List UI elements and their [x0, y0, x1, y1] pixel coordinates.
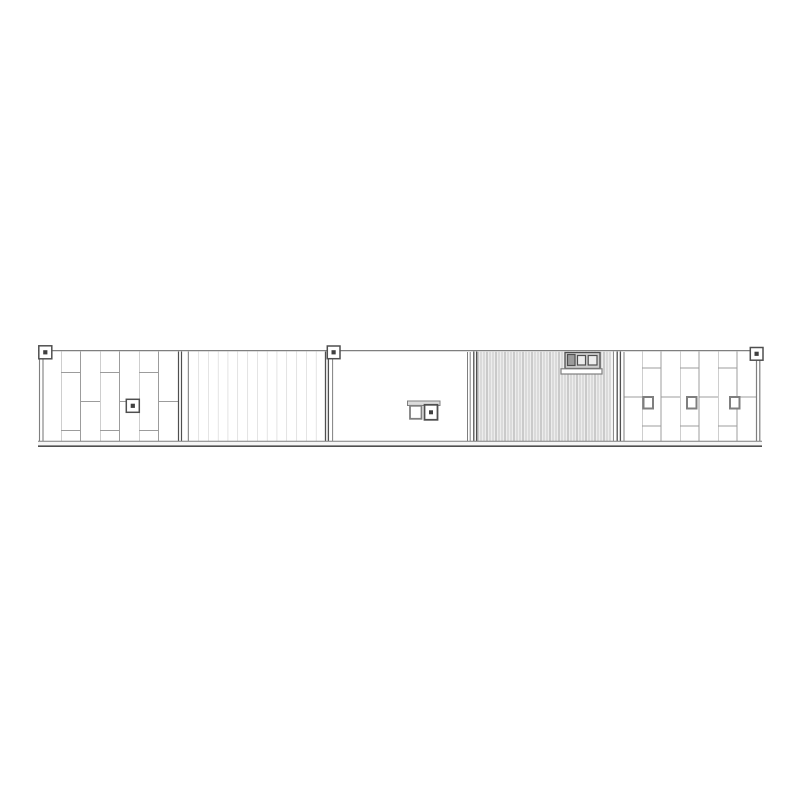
module-5-right-post: [757, 352, 760, 445]
module-2-siding: [188, 352, 318, 442]
post-module-3-4: [474, 352, 477, 446]
elevation-drawing: [0, 0, 800, 800]
module-5: [624, 352, 760, 446]
corner-marker-module-3-top-left: [327, 346, 340, 359]
vent-unit-ledge: [561, 369, 602, 374]
outlet-box-left-cell: [410, 406, 422, 419]
post-module-1-2: [179, 352, 182, 446]
double-outlet-box: [408, 401, 441, 420]
outlet-box-dot: [429, 410, 433, 414]
wall-fixture-2: [687, 397, 697, 409]
bottom-rail: [38, 441, 762, 446]
module-1-left-post: [40, 352, 44, 445]
vent-unit-dark-cell: [568, 355, 576, 366]
post-module-4-5: [617, 352, 620, 446]
corner-marker-module-1-top-left: [39, 346, 52, 359]
dot-marker-module-1-wall: [126, 399, 139, 412]
module-3: [333, 352, 471, 444]
module-1-plank-cladding: [61, 352, 179, 442]
vent-unit-window-1: [578, 356, 586, 366]
wall-fixture-1: [644, 397, 654, 409]
drawing-canvas: [0, 0, 800, 800]
module-4: [474, 352, 621, 446]
module-3-right-edge: [468, 352, 471, 444]
module-2: [188, 352, 318, 442]
module-1: [40, 352, 182, 446]
wall-fixture-3: [730, 397, 740, 409]
vent-unit-window-2: [588, 356, 597, 366]
post-module-2-3: [326, 352, 329, 446]
corner-marker-module-5-top-right: [750, 348, 763, 361]
vent-unit: [561, 353, 602, 375]
